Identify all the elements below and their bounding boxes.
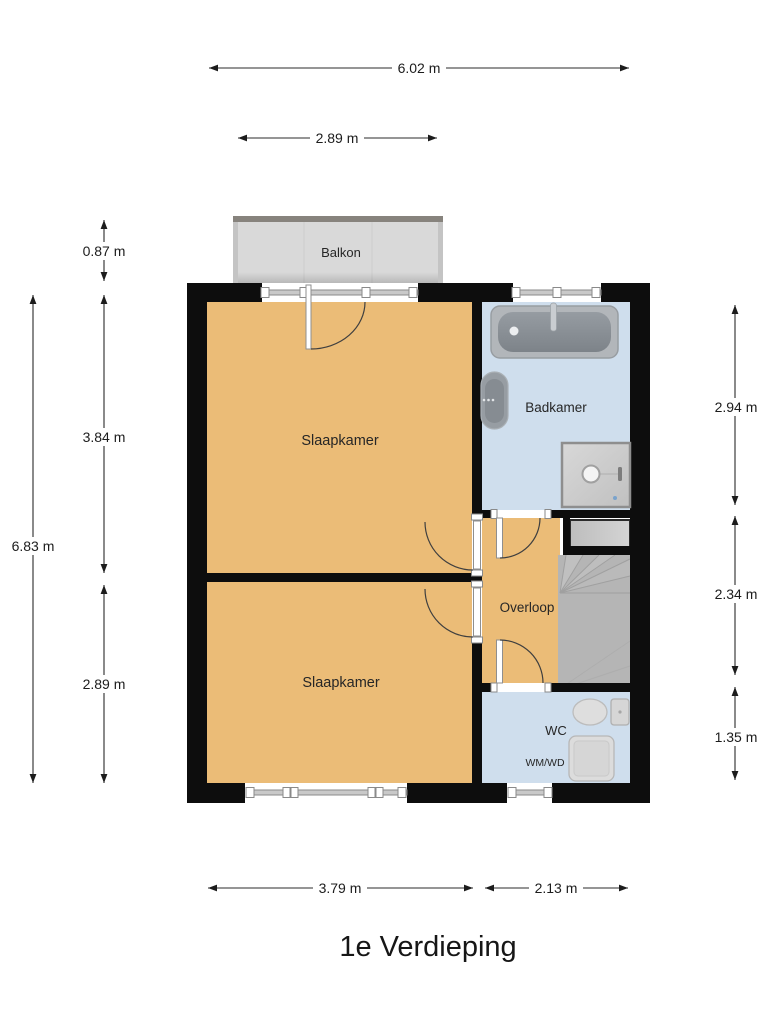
wall-overloop-lower [472, 637, 482, 683]
wall-landing-bottom [563, 546, 630, 555]
dimension-right-upper: 2.94 m [708, 305, 764, 505]
overloop-label: Overloop [500, 600, 555, 615]
opening-door-wc [497, 683, 545, 692]
dimension-label: 6.83 m [12, 538, 55, 554]
page-title: 1e Verdieping [339, 931, 516, 963]
wall-bedroom-divider [207, 573, 482, 582]
balcony: Balkon [233, 216, 443, 285]
dimension-overall-width: 6.02 m [209, 59, 629, 77]
opening-door-badkamer [497, 510, 545, 518]
slaapkamer-beneden-label: Slaapkamer [302, 675, 380, 691]
dimension-right-lower: 1.35 m [708, 687, 764, 780]
dimension-left-total: 6.83 m [6, 295, 60, 783]
wc-label: WC [545, 723, 567, 738]
shower-icon [562, 443, 630, 507]
slaapkamer-boven-label: Slaapkamer [301, 433, 379, 449]
wall-exterior-right [630, 283, 650, 803]
dimension-label: 2.89 m [316, 130, 359, 146]
floorplan-page: 6.02 m 2.89 m 0.87 m 3.84 m 2.89 m 6.83 … [0, 0, 768, 1024]
dimension-left-upper: 3.84 m [77, 295, 131, 573]
dimension-label: 0.87 m [83, 243, 126, 259]
dimension-label: 2.34 m [715, 586, 758, 602]
wall-wc-left [472, 692, 482, 783]
sink-icon [481, 372, 508, 429]
badkamer-label: Badkamer [525, 400, 587, 415]
washer-icon [569, 736, 614, 781]
dimension-balkon-width: 2.89 m [238, 129, 437, 147]
dimension-label: 2.94 m [715, 399, 758, 415]
dimension-label: 6.02 m [398, 60, 441, 76]
bathtub-icon [491, 303, 618, 358]
dimension-label: 3.79 m [319, 880, 362, 896]
toilet-icon [573, 699, 629, 725]
dimension-label: 2.13 m [535, 880, 578, 896]
wall-exterior-left [187, 283, 207, 803]
floorplan-svg: 6.02 m 2.89 m 0.87 m 3.84 m 2.89 m 6.83 … [0, 0, 768, 1024]
balcony-railing-top [233, 216, 443, 222]
dimension-bottom-left: 3.79 m [208, 879, 473, 897]
stairs-landing [570, 520, 630, 547]
dimension-bottom-right: 2.13 m [485, 879, 628, 897]
dimension-left-lower: 2.89 m [77, 585, 131, 783]
dimension-balkon-depth: 0.87 m [77, 220, 131, 281]
dimension-label: 3.84 m [83, 429, 126, 445]
balcony-label: Balkon [321, 245, 361, 260]
balcony-door-leaf [306, 285, 311, 349]
dimension-label: 2.89 m [83, 676, 126, 692]
dimension-right-middle: 2.34 m [708, 516, 764, 675]
wm-wd-label: WM/WD [525, 757, 564, 769]
dimension-label: 1.35 m [715, 729, 758, 745]
